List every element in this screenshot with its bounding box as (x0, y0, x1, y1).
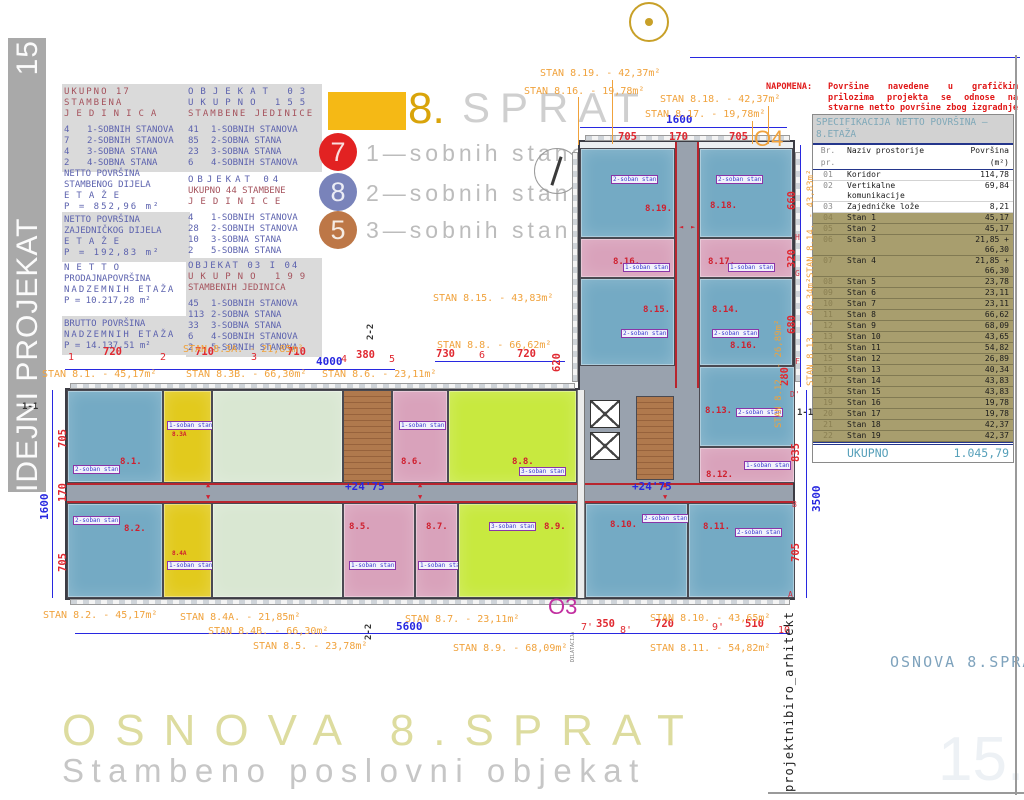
grid-2: 2 (160, 352, 166, 363)
section-marker-2-2: 2-2 (366, 324, 376, 340)
room-area: 8,21 (947, 202, 1013, 212)
apartment-number: 8.9. (544, 522, 566, 532)
unit-type-label: 3-SOBNA STANA (87, 147, 157, 158)
row-number: 14 (813, 343, 843, 353)
sheet-big-title: OSNOVA 8.SPRAT (62, 706, 703, 756)
apartment-8-6: 1-soban stan 8.6. (392, 390, 448, 483)
stan-label-8-18: STAN 8.18. - 42,37m² (660, 94, 780, 105)
sheet-number: 15 (10, 40, 46, 75)
unit-count-row: 852-SOBNA STANA (188, 136, 320, 147)
apartment-type-tag: 2-soban stan (73, 465, 120, 474)
spec-table-row: 22Stan 1942,37 (813, 431, 1013, 442)
spec-table-title: SPECIFIKACIJA NETTO POVRŠINA — 8.ETAŽA (813, 115, 1013, 145)
grid-7p: 7' (581, 622, 593, 633)
dim-320: 320 (786, 249, 798, 268)
room-area: 23,11 (947, 299, 1013, 309)
row-number: 04 (813, 213, 843, 223)
dim-4000: 4000 (316, 355, 343, 368)
spec-table-row: 09Stan 623,11 (813, 288, 1013, 299)
grid-8p: 8' (620, 625, 632, 636)
unit-type-label: 1-SOBNIH STANOVA (87, 125, 174, 136)
unit-count-row: 1132-SOBNA STANA (188, 310, 320, 321)
main-corridor (67, 483, 793, 503)
spec-table-row: 02Vertikalne komunikacije69,84 (813, 181, 1013, 202)
stats-line: UKUPNO 199 (188, 272, 320, 283)
col-naziv: Naziv prostorije (843, 145, 947, 169)
apartment-8-10: 8.10. 2-soban stan (585, 503, 688, 598)
spec-table-row: 16Stan 1340,34 (813, 365, 1013, 376)
section-marker-1-1: 1-1 (22, 402, 38, 412)
room-name: Stan 13 (843, 365, 947, 375)
room-area: 68,09 (947, 321, 1013, 331)
unit-count-row: 282-SOBNIH STANOVA (188, 224, 320, 235)
wing-corridor (675, 142, 699, 388)
unit-count: 6 (188, 332, 204, 343)
corridor-arrow-icon: ◄ (679, 224, 683, 231)
legend-circle-1soban: 7 (319, 133, 357, 171)
apartment-type-tag: 2-soban stan (642, 514, 689, 523)
apartment-number: 8.14. (712, 305, 739, 315)
grid-F: F (795, 357, 800, 366)
row-number: 21 (813, 420, 843, 430)
unit-type-label: 1-SOBNIH STANOVA (211, 125, 298, 136)
room-area: 23,11 (947, 288, 1013, 298)
unit-count-row: 41-SOBNIH STANOVA (188, 213, 320, 224)
room-area: 21,85 + 66,30 (947, 256, 1013, 276)
dim-3500: 3500 (810, 486, 823, 513)
room-name: Stan 9 (843, 321, 947, 331)
row-number: 19 (813, 398, 843, 408)
stan-label-8-5: STAN 8.5. - 23,78m² (253, 641, 367, 652)
dim-170: 170 (57, 483, 69, 502)
legend-count: 5 (330, 215, 345, 246)
unit-count-row: 64-SOBNIH STANOVA (188, 158, 320, 169)
stan-label-8-1: STAN 8.1. - 45,17m² (42, 369, 156, 380)
row-number: 10 (813, 299, 843, 309)
apartment-number: 8.19. (645, 204, 672, 214)
stats-brutto: BRUTTO POVRŠINA NADZEMNIH ETAŽA P = 14.1… (62, 316, 190, 355)
sheet-side-bar-text: IDEJNI PROJEKAT 15 (10, 40, 46, 492)
stats-line: NADZEMNIH ETAŽA (64, 330, 188, 341)
apartment-type-tag: 2-soban stan (735, 528, 782, 537)
row-number: 07 (813, 256, 843, 276)
dim-680: 680 (786, 315, 798, 334)
corridor-arrow-icon: ▲ (418, 482, 422, 489)
corridor-junction (675, 388, 699, 483)
balcony-strip (572, 152, 578, 382)
balcony-strip (70, 383, 575, 389)
unit-count: 10 (188, 235, 204, 246)
room-area: 40,34 (947, 365, 1013, 375)
stats-line: ETAŽE (64, 237, 188, 248)
stats-objekat-04: OBJEKAT 04 UKUPNO 44 STAMBENE JEDINICE 4… (186, 172, 322, 260)
apartment-type-tag: 3-soban stan (489, 522, 536, 531)
unit-type-label: 1-SOBNIH STANOVA (211, 299, 298, 310)
spec-table-row: 08Stan 523,78 (813, 277, 1013, 288)
stan-label-8-11: STAN 8.11. - 54,82m² (650, 643, 770, 654)
stats-line: BRUTTO POVRŠINA (64, 319, 188, 330)
spec-table-row: 04Stan 145,17 (813, 213, 1013, 224)
room-area: 42,37 (947, 431, 1013, 441)
legend-count: 8 (330, 177, 345, 208)
apartment-number: 8.7. (426, 522, 448, 532)
room-area: 19,78 (947, 409, 1013, 419)
unit-count: 23 (188, 147, 204, 158)
stats-line: P = 10.217,28 m² (64, 296, 188, 307)
stats-line: NETTO (64, 263, 188, 274)
row-number: 11 (813, 310, 843, 320)
apartment-number: 8.10. (610, 520, 637, 530)
room-name: Stan 19 (843, 431, 947, 441)
apartment-8-15: 8.15. 2-soban stan (580, 278, 675, 366)
apartment-type-tag: 2-soban stan (73, 516, 120, 525)
room-name: Stan 10 (843, 332, 947, 342)
apartment-number: 8.16. (730, 341, 757, 351)
col-br-pr: Br. pr. (813, 145, 843, 169)
floor-badge-swatch (328, 92, 406, 130)
compass-needle-icon (550, 156, 562, 185)
legend-circle-2soban: 8 (319, 173, 357, 211)
room-name: Stan 17 (843, 409, 947, 419)
dimension-line (52, 390, 53, 598)
sheet-number-watermark: 15. (938, 724, 1024, 795)
unit-count: 2 (188, 246, 204, 257)
apartment-type-tag: 1-soban stan (399, 421, 446, 430)
stan-label-8-4b: STAN 8.4B. - 66,30m² (208, 626, 328, 637)
room-area: 43,65 (947, 332, 1013, 342)
spec-table-row: 17Stan 1443,83 (813, 376, 1013, 387)
apartment-8-7: 8.7. 1-soban stan (415, 503, 458, 598)
room-area: 45,17 (947, 213, 1013, 223)
apartment-8-3b (212, 390, 343, 483)
apartment-8-16: 8.16. 1-soban stan (580, 238, 675, 278)
row-number: 17 (813, 376, 843, 386)
room-area: 21,85 + 66,30 (947, 235, 1013, 255)
spec-table-row: 03Zajedničke lože8,21 (813, 202, 1013, 213)
apartment-number: 8.3A (172, 431, 186, 438)
room-area: 43,83 (947, 387, 1013, 397)
room-name: Stan 12 (843, 354, 947, 364)
stats-line: UKUPNO 155 (188, 98, 320, 109)
dimension-line (806, 390, 807, 598)
unit-count-row: 64-SOBNIH STANOVA (188, 332, 320, 343)
room-area: 43,83 (947, 376, 1013, 386)
stats-line: STAMBENE JEDINICE (188, 109, 320, 120)
grid-1: 1 (68, 352, 74, 363)
unit-count: 28 (188, 224, 204, 235)
apartment-8-5: 8.5. 1-soban stan (343, 503, 415, 598)
unit-count-row: 25-SOBNA STANA (188, 246, 320, 257)
stats-line: OBJEKAT 03 I 04 (188, 261, 320, 272)
spec-table: SPECIFIKACIJA NETTO POVRŠINA — 8.ETAŽA B… (812, 114, 1014, 463)
apartment-type-tag: 2-soban stan (611, 175, 658, 184)
legend-count: 7 (330, 137, 345, 168)
room-name: Stan 14 (843, 376, 947, 386)
apartment-number: 8.11. (703, 522, 730, 532)
row-number: 09 (813, 288, 843, 298)
spec-table-row: 18Stan 1543,83 (813, 387, 1013, 398)
grid-6: 6 (479, 350, 485, 361)
stan-label-8-16: STAN 8.16. - 19,78m² (524, 86, 644, 97)
stats-title: UKUPNO 17 STAMBENA (64, 87, 188, 109)
room-name: Stan 8 (843, 310, 947, 320)
stan-label-8-2: STAN 8.2. - 45,17m² (43, 610, 157, 621)
apartment-number: 8.1. (120, 457, 142, 467)
corridor-arrow-icon: ► (691, 224, 695, 231)
corridor-arrow-icon: ▲ (206, 482, 210, 489)
unit-count-row: 333-SOBNA STANA (188, 321, 320, 332)
unit-count-row: 43-SOBNA STANA (64, 147, 188, 158)
dim-620: 620 (551, 353, 563, 372)
stats-netto-prodajna: NETTO PRODAJNAPOVRŠINA NADZEMNIH ETAŽA P… (62, 260, 190, 310)
section-marker-2-2: 2-2 (364, 624, 374, 640)
unit-count: 6 (188, 158, 204, 169)
grid-Dp: D' (790, 390, 800, 399)
dim-1600-left: 1600 (38, 494, 51, 521)
floor-number: 8. (408, 84, 445, 134)
stairwell (343, 390, 392, 483)
room-area: 26,89 (947, 354, 1013, 364)
unit-count-row: 103-SOBNA STANA (188, 235, 320, 246)
stan-label-8-19: STAN 8.19. - 42,37m² (540, 68, 660, 79)
apartment-number: 8.18. (710, 201, 737, 211)
row-number: 18 (813, 387, 843, 397)
dim-720: 720 (103, 346, 122, 358)
unit-type-label: 4-SOBNIH STANOVA (211, 158, 298, 169)
room-name: Zajedničke lože (843, 202, 947, 212)
room-area: 66,62 (947, 310, 1013, 320)
stats-objekat-03-04: OBJEKAT 03 I 04 UKUPNO 199 STAMBENIH JED… (186, 258, 322, 357)
room-area: 23,78 (947, 277, 1013, 287)
apartment-number: 8.6. (401, 457, 423, 467)
corridor-arrow-icon: ▼ (418, 494, 422, 501)
stan-label-8-9: STAN 8.9. - 68,09m² (453, 643, 567, 654)
room-name: Stan 18 (843, 420, 947, 430)
stan-label-8-17: STAN 8.17. - 19,78m² (645, 109, 765, 120)
stats-total-units: UKUPNO 17 STAMBENA JEDINICA 41-SOBNIH ST… (62, 84, 190, 172)
project-phase-label: IDEJNI PROJEKAT (10, 218, 46, 492)
unit-type-label: 2-SOBNA STANA (211, 136, 281, 147)
stats-objekat-03: OBJEKAT 03 UKUPNO 155 STAMBENE JEDINICE … (186, 84, 322, 172)
apartment-8-4b (212, 503, 343, 598)
apartment-number: 8.4A (172, 550, 186, 557)
spec-table-row: 06Stan 321,85 + 66,30 (813, 235, 1013, 256)
apartment-type-tag: 2-soban stan (716, 175, 763, 184)
apartment-8-4a: 1-soban stan 8.4A (163, 503, 212, 598)
architect-credit: projektnibiro_arhitekt (782, 611, 796, 792)
spec-table-row: 11Stan 866,62 (813, 310, 1013, 321)
room-name: Stan 1 (843, 213, 947, 223)
spec-table-row: 21Stan 1842,37 (813, 420, 1013, 431)
stan-label-8-4a: STAN 8.4A. - 21,85m² (180, 612, 300, 623)
row-number: 12 (813, 321, 843, 331)
col-povrsina: Površina (m²) (947, 145, 1013, 169)
unit-count-list: 41-SOBNIH STANOVA282-SOBNIH STANOVA103-S… (188, 213, 320, 257)
row-number: 08 (813, 277, 843, 287)
row-number: 16 (813, 365, 843, 375)
legend-circle-3soban: 5 (319, 211, 357, 249)
spec-title-line1: SPECIFIKACIJA NETTO POVRŠINA — (816, 117, 1010, 129)
apartment-type-tag: 1-soban stan (167, 421, 214, 430)
apartment-type-tag: 1-soban stan (167, 561, 214, 570)
apartment-number: 8.12. (706, 470, 733, 480)
grid-B: B (792, 500, 797, 509)
dimension-line (800, 145, 801, 387)
corridor-arrow-icon: ▼ (663, 494, 667, 501)
apartment-type-tag: 3-soban stan (519, 467, 566, 476)
spec-table-row: 07Stan 421,85 + 66,30 (813, 256, 1013, 277)
stats-line: NADZEMNIH ETAŽA (64, 285, 188, 296)
apartment-type-tag: 2-soban stan (621, 329, 668, 338)
apartment-number: 8.15. (643, 305, 670, 315)
stats-line: NETTO POVRŠINA (64, 169, 188, 180)
room-name: Vertikalne komunikacije (843, 181, 947, 201)
sheet-subtitle: Stambeno poslovni objekat (62, 752, 646, 790)
level-label: +24'75 (632, 480, 672, 493)
drawing-name: OSNOVA 8.SPRAT (890, 653, 1024, 671)
row-number: 03 (813, 202, 843, 212)
row-number: 02 (813, 181, 843, 201)
unit-count: 4 (64, 125, 80, 136)
unit-type-label: 2-SOBNIH STANOVA (87, 136, 174, 147)
apartment-8-1: 8.1. 2-soban stan (67, 390, 163, 483)
unit-type-label: 2-SOBNIH STANOVA (211, 224, 298, 235)
unit-type-label: 3-SOBNA STANA (211, 235, 281, 246)
stan-label-8-14: STAN 8.14. - 43,83m² (806, 170, 816, 278)
sheet-frame-line (768, 792, 1024, 794)
unit-count-row: 233-SOBNA STANA (188, 147, 320, 158)
level-label: +24'75 (345, 480, 385, 493)
room-name: Stan 3 (843, 235, 947, 255)
room-name: Stan 5 (843, 277, 947, 287)
row-number: 15 (813, 354, 843, 364)
unit-count: 4 (188, 213, 204, 224)
sheet-frame-line (1015, 55, 1017, 795)
apartment-8-8: 8.8. 3-soban stan (448, 390, 577, 483)
grid-G: G (795, 269, 800, 278)
dim-835: 835 (790, 443, 802, 462)
stats-line: STAMBENOG DIJELA (64, 180, 188, 191)
grid-5: 5 (389, 354, 395, 365)
stan-label-8-13: STAN 8.13. - 40,34m² (806, 278, 816, 386)
stan-label-8-3b: STAN 8.3B. - 66,30m² (186, 369, 306, 380)
dim-705: 705 (729, 131, 748, 143)
apartment-type-tag: 1-soban stan (349, 561, 396, 570)
survey-point-dot (645, 18, 653, 26)
spec-table-row: 05Stan 245,17 (813, 224, 1013, 235)
core-stairwell (636, 396, 674, 480)
dim-705: 705 (57, 553, 69, 572)
leader-line (752, 121, 753, 144)
spec-table-total: UKUPNO 1.045,79 (813, 442, 1013, 462)
total-value: 1.045,79 (954, 445, 1009, 462)
stan-label-8-8: STAN 8.8. - 66,62m² (437, 340, 551, 351)
room-area: 19,78 (947, 398, 1013, 408)
stats-title: JEDINICA (64, 109, 188, 120)
stats-line: JEDINICE (188, 197, 320, 208)
stats-line: PRODAJNAPOVRŠINA (64, 274, 188, 285)
room-area: 114,78 (947, 170, 1013, 180)
stats-netto-stambeni: NETTO POVRŠINA STAMBENOG DIJELA ETAŽE P … (62, 166, 190, 216)
unit-count-row: 41-SOBNIH STANOVA (64, 125, 188, 136)
spec-table-header: Br. pr. Naziv prostorije Površina (m²) (813, 145, 1013, 170)
stats-line: ETAŽE (64, 191, 188, 202)
dilatacija-joint (577, 390, 585, 598)
spec-table-row: 19Stan 1619,78 (813, 398, 1013, 409)
dimension-line (435, 361, 565, 362)
grid-H: H (795, 233, 800, 242)
stan-label-8-6: STAN 8.6. - 23,11m² (322, 369, 436, 380)
row-number: 22 (813, 431, 843, 441)
row-number: 20 (813, 409, 843, 419)
apartment-8-12: 8.12. 1-soban stan (699, 447, 795, 483)
survey-point-icon (629, 2, 669, 42)
apartment-8-18: 2-soban stan 8.18. (699, 148, 793, 238)
corridor-arrow-icon: ▼ (206, 494, 210, 501)
spec-table-row: 01Koridor114,78 (813, 170, 1013, 181)
room-area: 54,82 (947, 343, 1013, 353)
apartment-number: 8.2. (124, 524, 146, 534)
dimension-line (690, 57, 1020, 58)
stats-line: ZAJEDNIČKOG DIJELA (64, 226, 188, 237)
apartment-8-9: 3-soban stan 8.9. (458, 503, 577, 598)
spec-table-row: 14Stan 1154,82 (813, 343, 1013, 354)
stats-line: STAMBENIH JEDINICA (188, 283, 320, 294)
spec-table-row: 20Stan 1719,78 (813, 409, 1013, 420)
elevator-shaft-icon (590, 432, 620, 460)
stan-label-8-12: STAN 8.12. - 26,89m² (774, 320, 784, 428)
row-number: 13 (813, 332, 843, 342)
leader-line (578, 97, 579, 145)
stats-line: P = 192,83 m² (64, 248, 188, 259)
unit-count: 45 (188, 299, 204, 310)
unit-count: 7 (64, 136, 80, 147)
unit-type-label: 3-SOBNA STANA (211, 147, 281, 158)
stan-label-8-7: STAN 8.7. - 23,11m² (405, 614, 519, 625)
leader-line (768, 106, 769, 144)
stan-label-8-15: STAN 8.15. - 43,83m² (433, 293, 553, 304)
dim-660: 660 (786, 191, 798, 210)
apartment-8-3a: 1-soban stan 8.3A (163, 390, 212, 483)
unit-type-label: 2-SOBNA STANA (211, 310, 281, 321)
apartment-number: 8.13. (705, 406, 732, 416)
room-name: Stan 4 (843, 256, 947, 276)
object-03-marker: O3 (548, 594, 577, 620)
unit-count: 4 (64, 147, 80, 158)
unit-count-list: 411-SOBNIH STANOVA852-SOBNA STANA233-SOB… (188, 125, 320, 169)
balcony-strip (70, 599, 790, 605)
room-name: Stan 15 (843, 387, 947, 397)
unit-count: 41 (188, 125, 204, 136)
apartment-number: 8.8. (512, 457, 534, 467)
dim-705: 705 (790, 543, 802, 562)
elevator-shaft-icon (590, 400, 620, 428)
unit-count-row: 72-SOBNIH STANOVA (64, 136, 188, 147)
apartment-type-tag: 1-soban stan (728, 263, 775, 272)
apartment-type-tag: 1-soban stan (623, 263, 670, 272)
spec-title-line2: 8.ETAŽA (816, 129, 1010, 141)
apartment-8-19: 2-soban stan 8.19. (580, 148, 675, 238)
dim-380: 380 (356, 349, 375, 361)
apartment-type-tag: 1-soban stan (744, 461, 791, 470)
apartment-8-2: 2-soban stan 8.2. (67, 503, 163, 598)
unit-count: 33 (188, 321, 204, 332)
total-label: UKUPNO (847, 445, 889, 462)
apartment-type-tag: 2-soban stan (712, 329, 759, 338)
room-name: Koridor (843, 170, 947, 180)
stats-netto-zajednicki: NETTO POVRŠINA ZAJEDNIČKOG DIJELA ETAŽE … (62, 212, 190, 262)
unit-type-label: 3-SOBNA STANA (211, 321, 281, 332)
